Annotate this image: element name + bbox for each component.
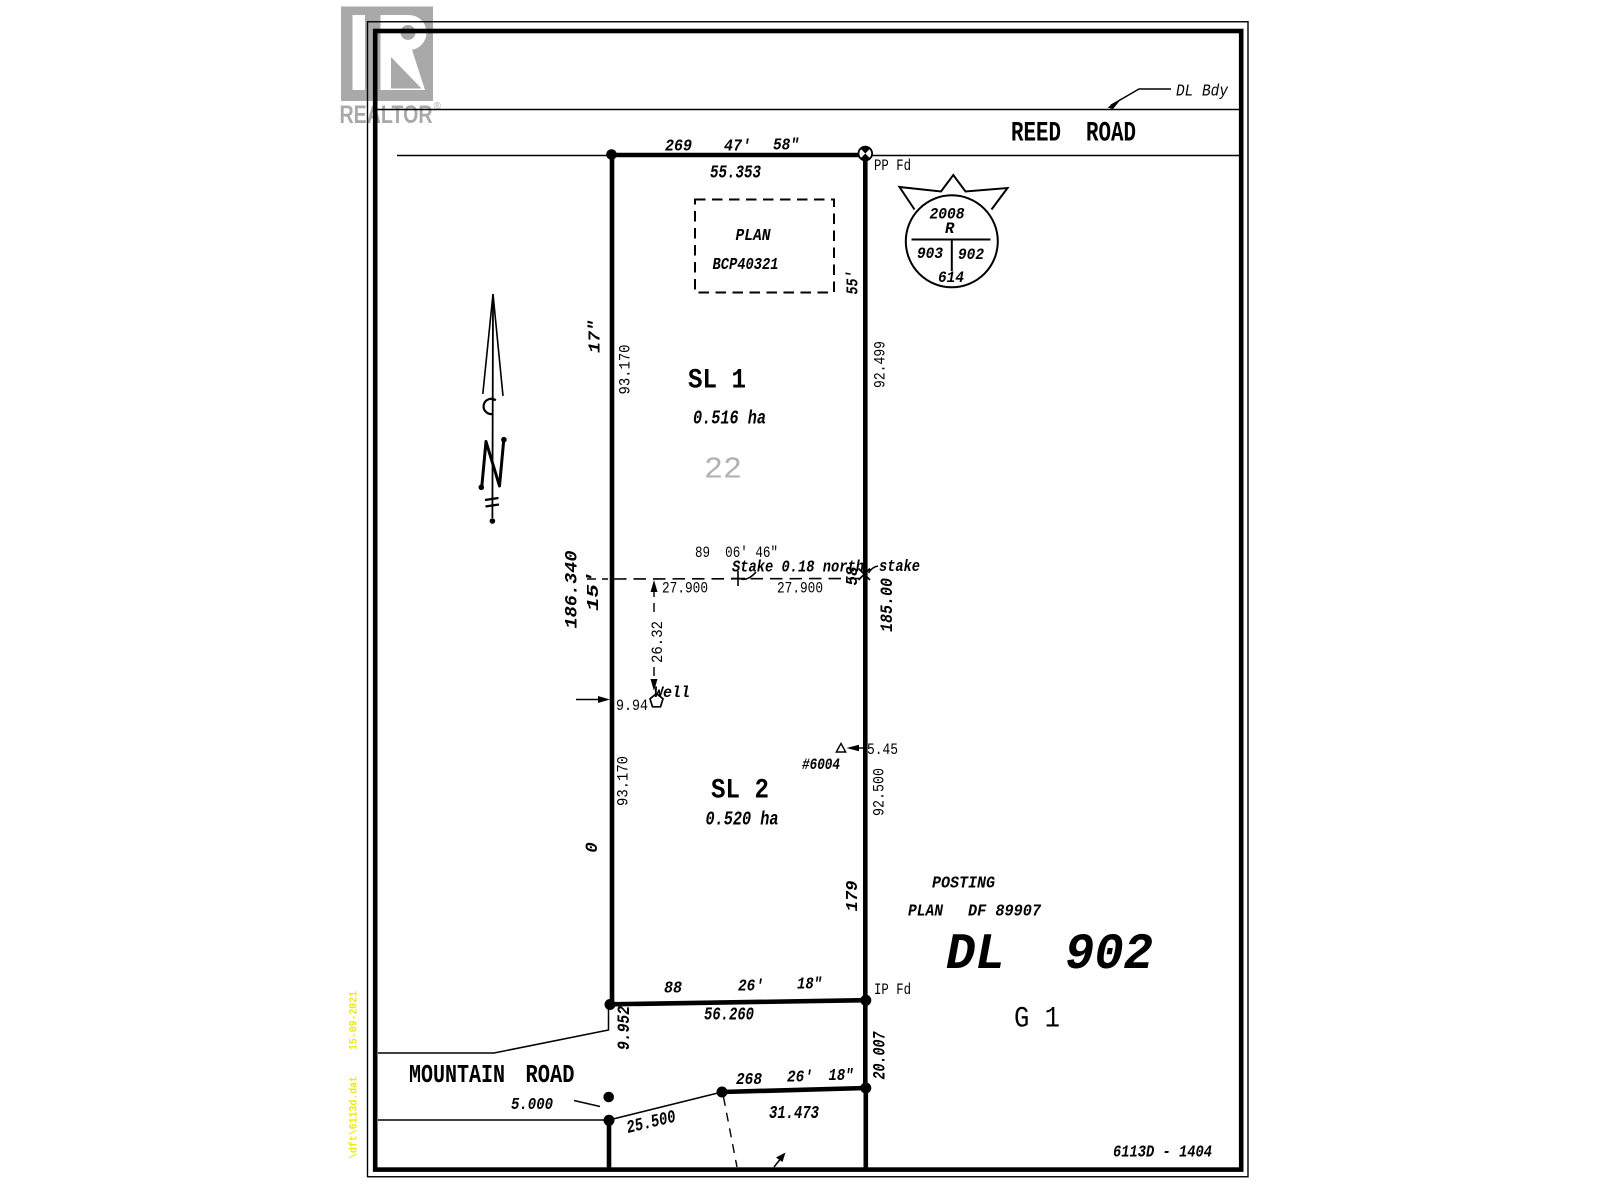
svg-text:26': 26' bbox=[787, 1068, 813, 1087]
svg-text:Well: Well bbox=[654, 684, 690, 702]
svg-text:REALTOR: REALTOR bbox=[340, 101, 433, 129]
svg-text:614: 614 bbox=[938, 269, 964, 287]
svg-text:27.900: 27.900 bbox=[662, 580, 708, 598]
svg-text:\dft\6113d.dat: \dft\6113d.dat bbox=[349, 1076, 361, 1159]
svg-text:92.500: 92.500 bbox=[871, 768, 889, 816]
svg-text:15': 15' bbox=[584, 571, 603, 611]
svg-text:902: 902 bbox=[958, 246, 984, 264]
svg-text:DL: DL bbox=[946, 927, 1005, 984]
svg-text:56.260: 56.260 bbox=[704, 1006, 754, 1026]
svg-text:REED: REED bbox=[1011, 119, 1061, 150]
svg-text:186.340: 186.340 bbox=[563, 551, 583, 629]
svg-text:G 1: G 1 bbox=[1014, 1003, 1060, 1037]
svg-text:268: 268 bbox=[736, 1070, 762, 1089]
svg-text:22: 22 bbox=[704, 453, 742, 488]
svg-text:POSTING: POSTING bbox=[932, 875, 995, 894]
svg-text:27.900: 27.900 bbox=[777, 580, 823, 598]
svg-text:stake: stake bbox=[879, 557, 920, 576]
svg-text:26': 26' bbox=[738, 977, 764, 996]
svg-text:26.32: 26.32 bbox=[649, 621, 667, 663]
svg-text:20.007: 20.007 bbox=[871, 1031, 891, 1079]
svg-text:903: 903 bbox=[917, 245, 943, 263]
svg-text:®: ® bbox=[434, 101, 442, 112]
svg-text:15-09-2021: 15-09-2021 bbox=[349, 991, 361, 1050]
svg-text:0.520 ha: 0.520 ha bbox=[706, 809, 779, 831]
svg-text:IP Fd: IP Fd bbox=[874, 981, 911, 999]
svg-text:55': 55' bbox=[844, 271, 863, 295]
svg-text:PLAN: PLAN bbox=[736, 226, 772, 245]
svg-text:PP Fd: PP Fd bbox=[874, 157, 911, 175]
svg-text:#6004: #6004 bbox=[802, 756, 840, 774]
svg-text:92.499: 92.499 bbox=[872, 341, 890, 388]
svg-text:269: 269 bbox=[665, 137, 692, 156]
svg-text:BCP40321: BCP40321 bbox=[713, 255, 779, 274]
svg-text:88: 88 bbox=[664, 979, 682, 998]
svg-text:902: 902 bbox=[1065, 927, 1153, 984]
svg-text:18": 18" bbox=[797, 975, 822, 994]
svg-text:9.94: 9.94 bbox=[616, 697, 648, 715]
svg-text:185.00: 185.00 bbox=[878, 578, 898, 632]
svg-text:93.170: 93.170 bbox=[617, 345, 635, 395]
svg-text:17": 17" bbox=[586, 320, 605, 353]
svg-text:ROAD: ROAD bbox=[526, 1060, 575, 1090]
svg-text:31.473: 31.473 bbox=[769, 1104, 819, 1124]
svg-text:6113D - 1404: 6113D - 1404 bbox=[1113, 1144, 1212, 1163]
svg-text:58": 58" bbox=[773, 136, 799, 155]
svg-text:179: 179 bbox=[843, 880, 862, 911]
svg-text:R: R bbox=[945, 220, 955, 238]
svg-text:DF 89907: DF 89907 bbox=[968, 903, 1042, 922]
svg-text:58: 58 bbox=[843, 566, 862, 585]
svg-text:55.353: 55.353 bbox=[710, 164, 761, 184]
svg-text:0: 0 bbox=[583, 842, 603, 853]
svg-text:9.952: 9.952 bbox=[615, 1006, 635, 1050]
svg-text:DL Bdy: DL Bdy bbox=[1176, 82, 1229, 101]
svg-text:ROAD: ROAD bbox=[1086, 119, 1136, 150]
svg-text:SL 2: SL 2 bbox=[711, 776, 769, 807]
svg-text:5.000: 5.000 bbox=[511, 1095, 553, 1114]
svg-text:47': 47' bbox=[724, 137, 751, 156]
svg-text:18": 18" bbox=[829, 1066, 854, 1085]
svg-text:0.516 ha: 0.516 ha bbox=[693, 408, 766, 430]
svg-text:SL 1: SL 1 bbox=[688, 366, 746, 397]
svg-text:MOUNTAIN: MOUNTAIN bbox=[409, 1060, 505, 1090]
svg-text:5.45: 5.45 bbox=[867, 741, 898, 759]
svg-text:93.170: 93.170 bbox=[615, 756, 633, 806]
svg-text:PLAN: PLAN bbox=[908, 903, 944, 922]
